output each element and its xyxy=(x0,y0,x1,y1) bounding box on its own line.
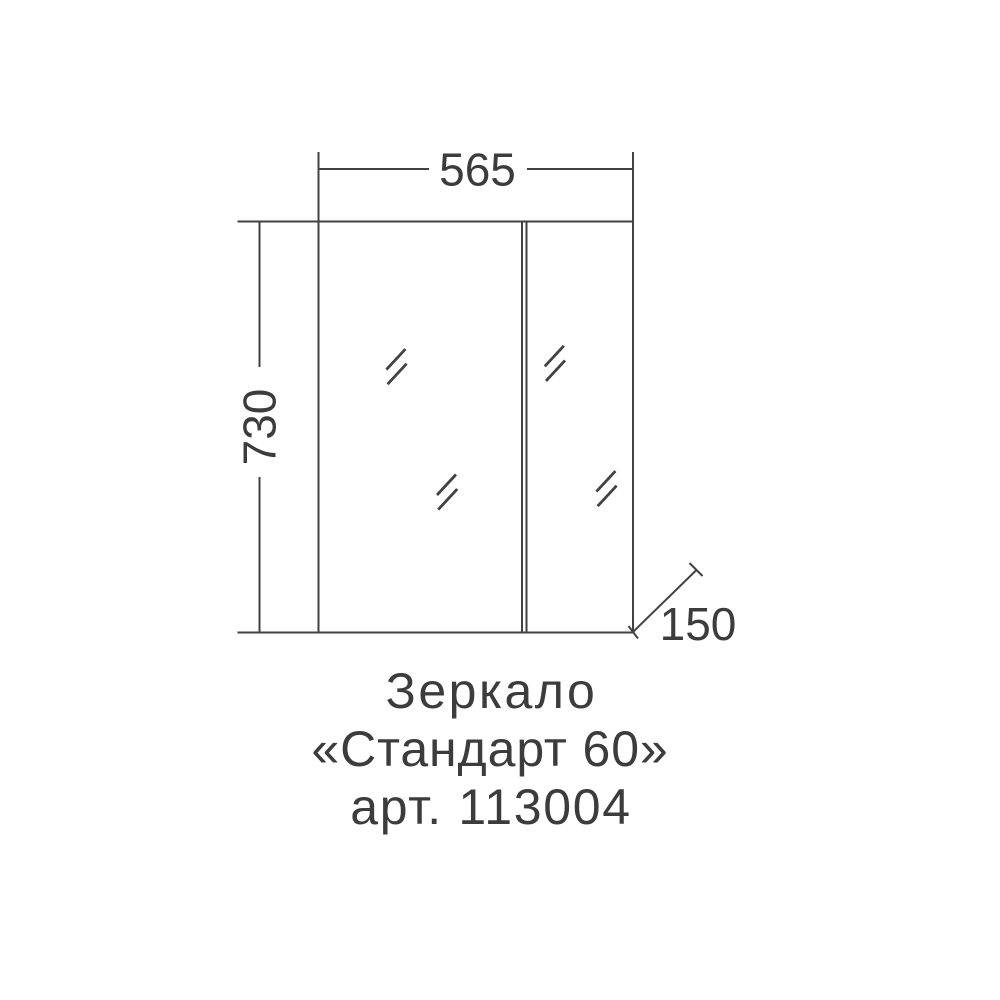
svg-text:«Стандарт 60»: «Стандарт 60» xyxy=(311,721,668,777)
svg-text:арт. 113004: арт. 113004 xyxy=(350,779,632,835)
svg-text:730: 730 xyxy=(234,389,286,466)
svg-text:150: 150 xyxy=(660,598,737,650)
svg-text:565: 565 xyxy=(439,144,516,196)
svg-text:Зеркало: Зеркало xyxy=(386,663,598,719)
